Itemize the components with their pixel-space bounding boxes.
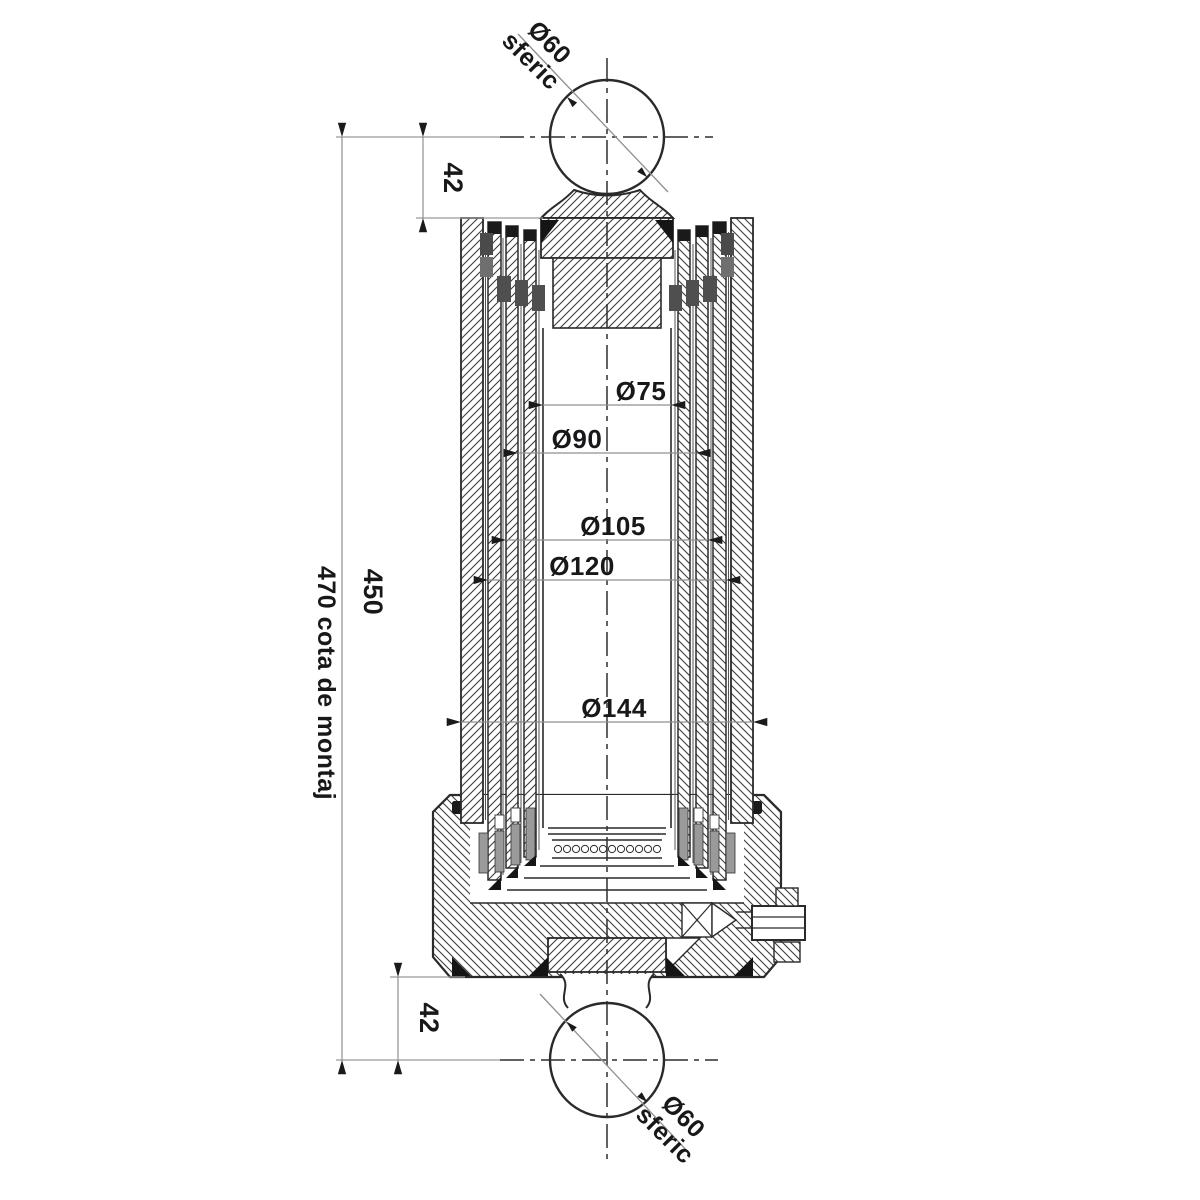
label-bore-90: Ø90 [552,424,603,454]
tube-stack-right [669,218,753,890]
label-mounting-470: 470 cota de montaj [312,566,340,800]
label-bore-75: Ø75 [616,376,667,406]
label-length-450: 450 [358,569,388,616]
tube-stack-left [461,218,545,890]
label-stub-bottom: 42 [414,1002,444,1033]
telescopic-cylinder-section: 42 450 470 cota de montaj 42 Ø75 Ø90 Ø10… [0,0,1200,1200]
technical-drawing: 42 450 470 cota de montaj 42 Ø75 Ø90 Ø10… [0,0,1200,1200]
label-bore-105: Ø105 [580,511,646,541]
label-bore-144: Ø144 [581,693,647,723]
label-stub-top: 42 [438,162,468,193]
label-ball-top: Ø60 sferic [496,8,583,95]
cylinder-body [433,218,805,977]
port-nipple [752,906,805,940]
label-bore-120: Ø120 [549,551,615,581]
